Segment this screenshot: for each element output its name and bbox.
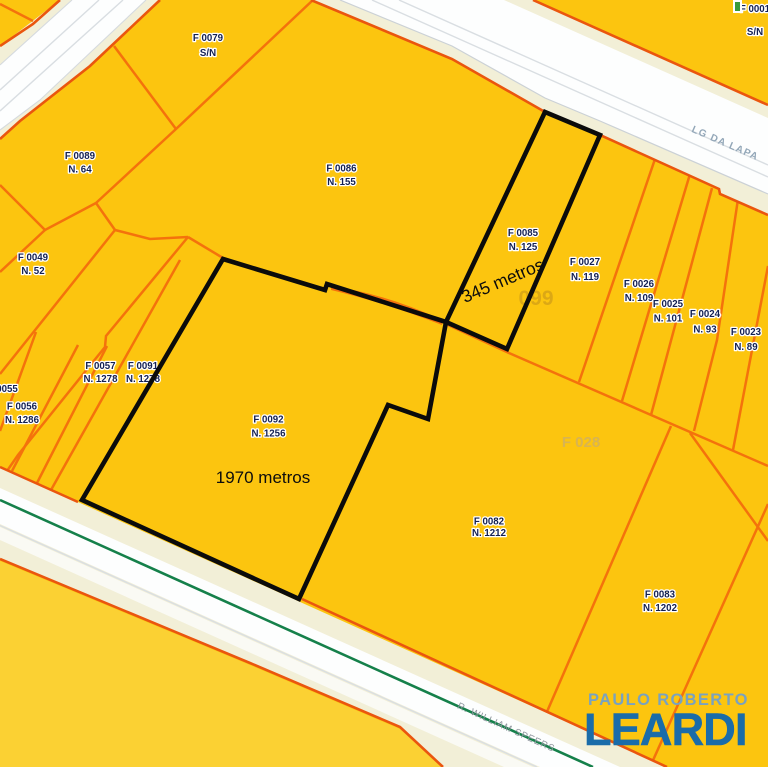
svg-text:F 0091: F 0091 [128, 361, 159, 372]
svg-text:N. 1202: N. 1202 [643, 603, 677, 614]
svg-text:N. 109: N. 109 [625, 293, 654, 304]
svg-text:N. 52: N. 52 [21, 266, 44, 277]
svg-text:F 0001: F 0001 [740, 4, 768, 15]
svg-text:F 0049: F 0049 [18, 253, 49, 264]
svg-text:F 0056: F 0056 [7, 402, 38, 413]
svg-text:F 0027: F 0027 [570, 257, 600, 268]
svg-text:F 0079: F 0079 [193, 33, 224, 44]
svg-text:N. 1212: N. 1212 [472, 528, 506, 539]
svg-text:LEARDI: LEARDI [584, 704, 747, 755]
svg-text:1970 metros: 1970 metros [216, 468, 311, 487]
svg-text:F 0089: F 0089 [65, 151, 96, 162]
svg-text:N. 93: N. 93 [693, 325, 717, 336]
svg-text:F 0085: F 0085 [508, 228, 539, 239]
svg-text:F 0026: F 0026 [624, 279, 655, 290]
svg-text:F 0023: F 0023 [731, 327, 762, 338]
svg-text:N. 101: N. 101 [654, 314, 683, 325]
svg-text:F 0082: F 0082 [474, 517, 504, 528]
svg-text:F 0092: F 0092 [253, 415, 283, 426]
svg-text:0055: 0055 [0, 384, 18, 395]
svg-text:F 0057: F 0057 [85, 361, 115, 372]
svg-text:N. 155: N. 155 [327, 177, 356, 188]
svg-text:N. 1256: N. 1256 [252, 429, 287, 440]
svg-text:N. 1278: N. 1278 [84, 374, 119, 385]
svg-text:F 0025: F 0025 [653, 299, 684, 310]
svg-text:N. 89: N. 89 [734, 342, 758, 353]
svg-text:F 0024: F 0024 [690, 309, 721, 320]
svg-text:S/N: S/N [747, 27, 763, 38]
svg-text:S/N: S/N [200, 48, 216, 59]
svg-text:F 0086: F 0086 [326, 164, 357, 175]
svg-text:F 0083: F 0083 [645, 590, 676, 601]
svg-text:N. 64: N. 64 [68, 165, 92, 176]
svg-text:N. 119: N. 119 [571, 272, 600, 283]
svg-text:N. 125: N. 125 [509, 242, 538, 253]
svg-text:F 028: F 028 [562, 434, 600, 451]
svg-text:N. 1286: N. 1286 [5, 415, 40, 426]
